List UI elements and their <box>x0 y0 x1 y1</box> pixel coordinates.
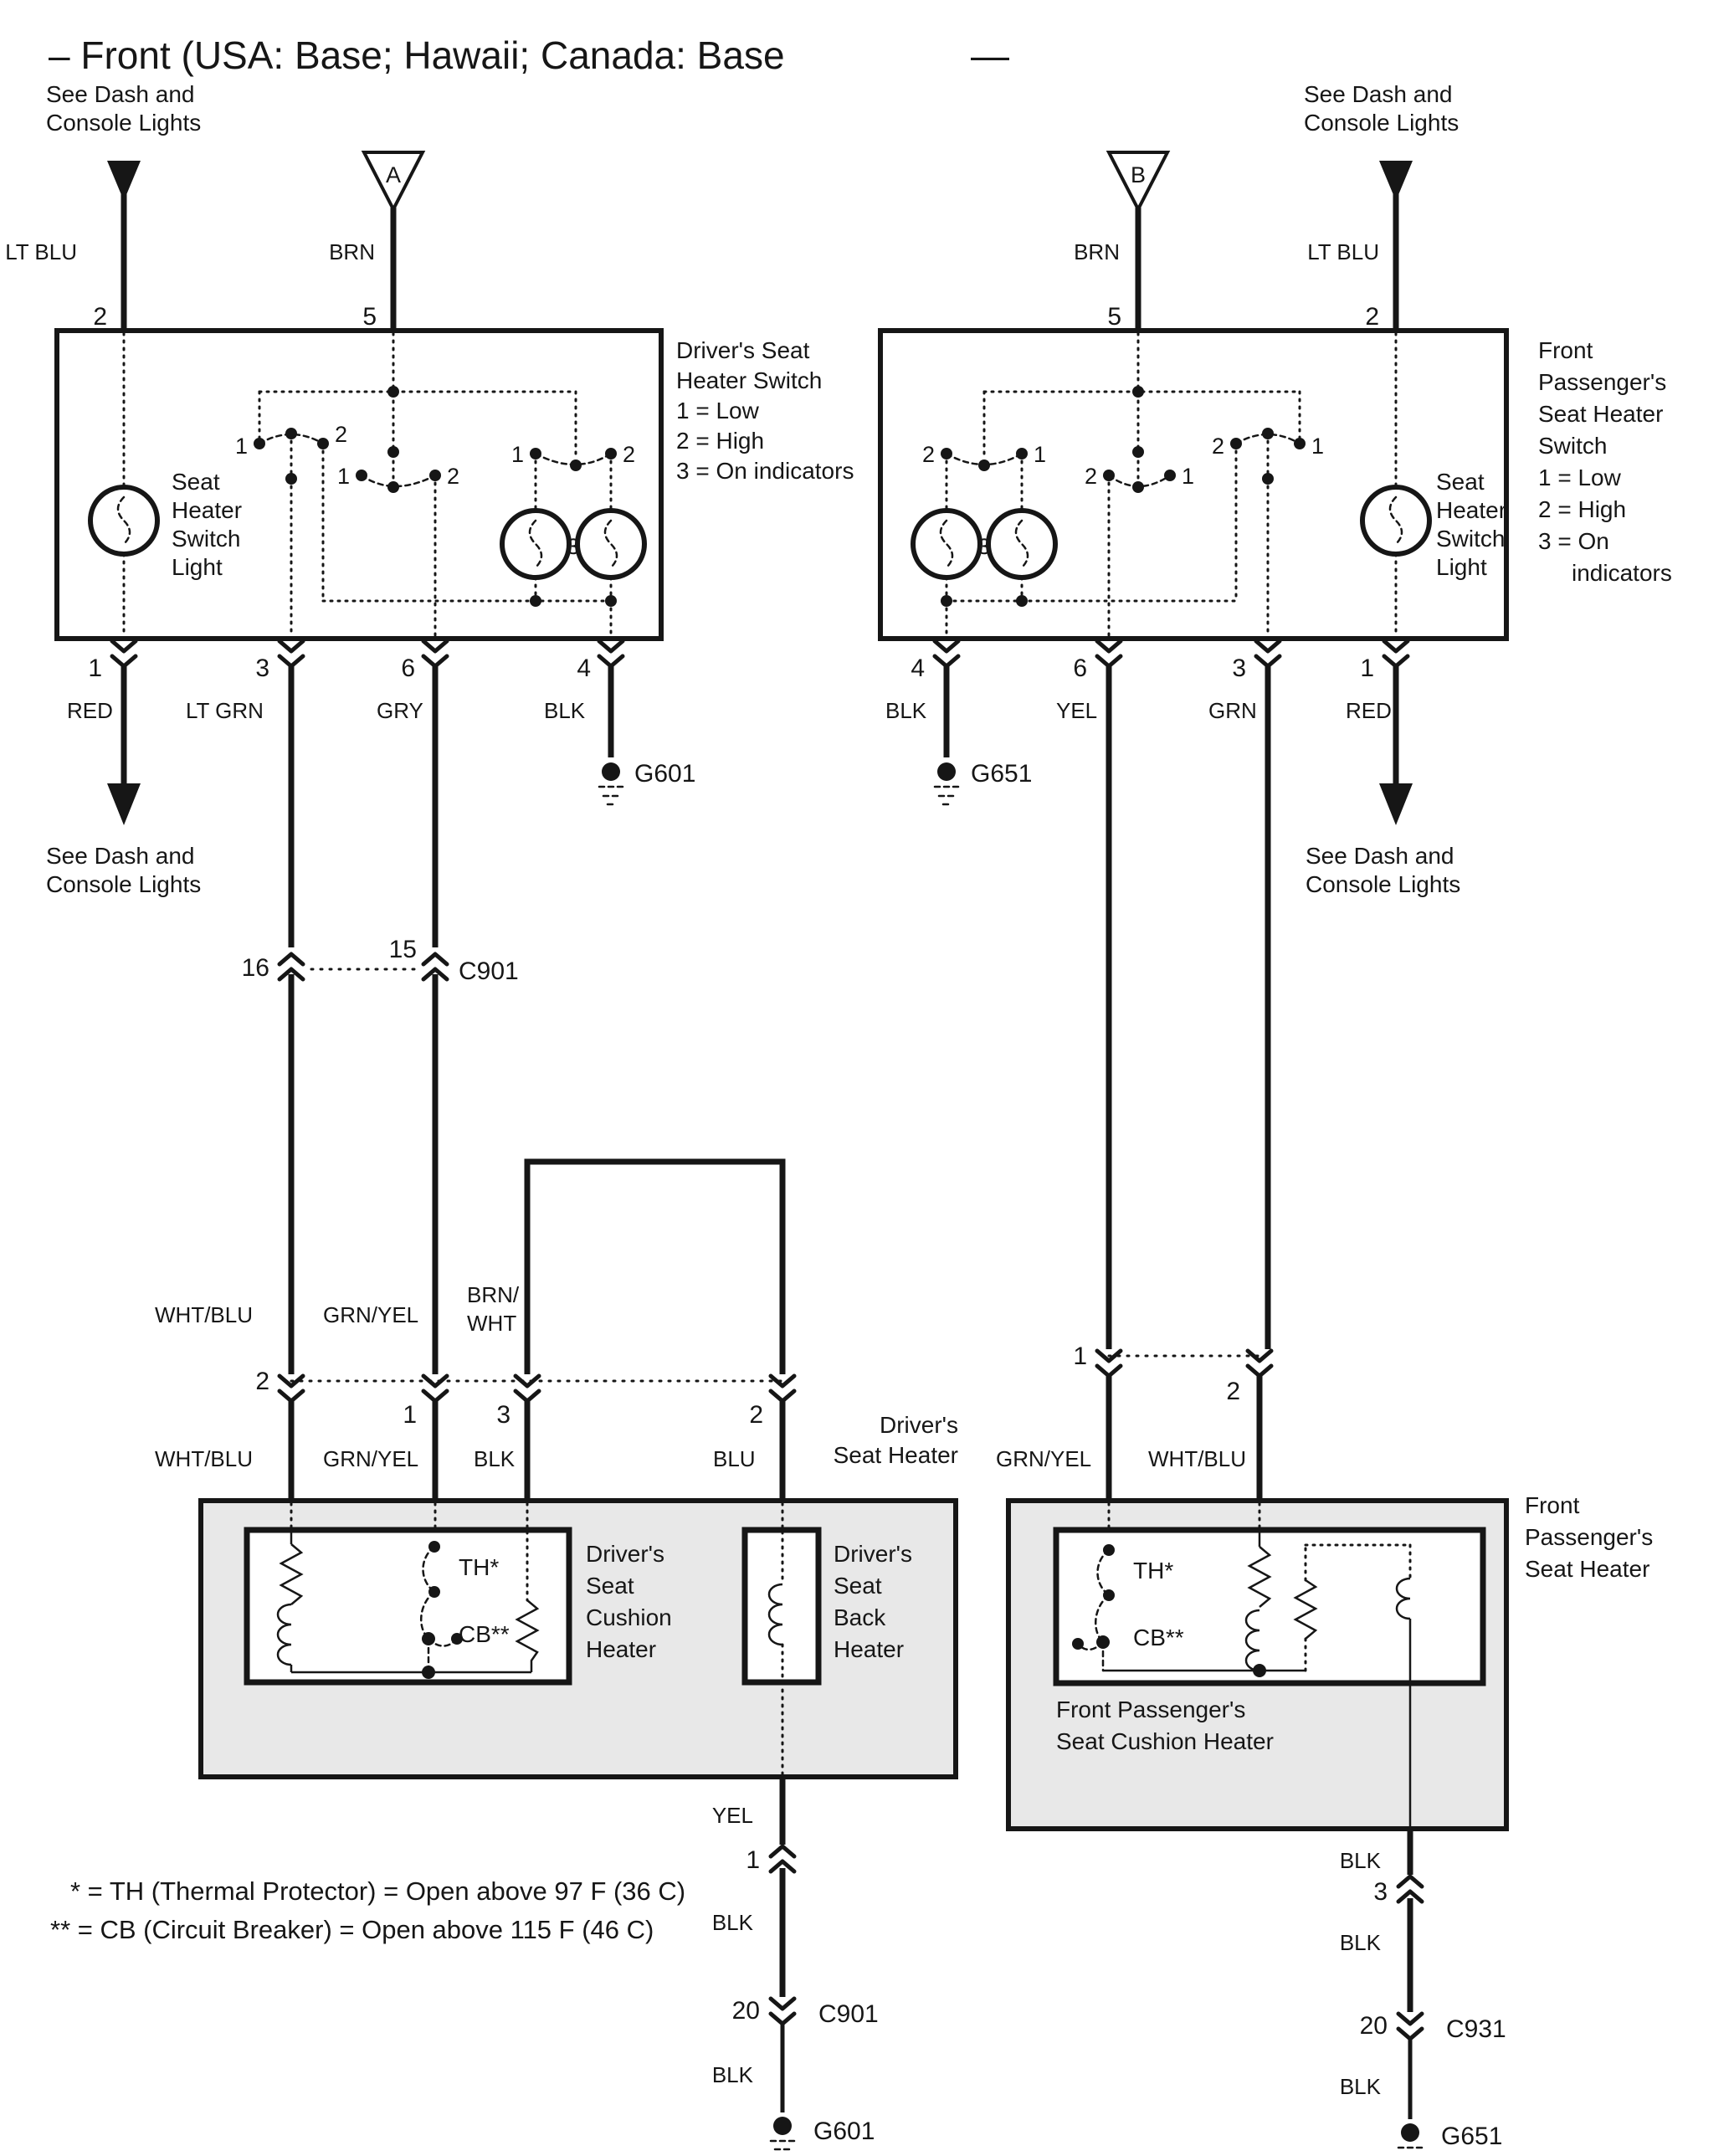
junction-dot <box>1132 446 1144 458</box>
passenger-switch-caption-2: Passenger's <box>1538 369 1666 395</box>
wire-label-brnwht-2: WHT <box>467 1311 516 1336</box>
passenger-switch-caption-4: Switch <box>1538 433 1607 459</box>
passenger-switch-caption-7: 3 = On <box>1538 528 1609 554</box>
pin-2-passenger-conn: 2 <box>1226 1378 1240 1405</box>
driver-indicator2-filament-icon <box>605 521 617 567</box>
driver-ground-chain: YEL 1 BLK 20 C901 BLK G601 <box>712 1777 879 2149</box>
passenger-switch3-pos1: 1 <box>1311 434 1324 459</box>
passenger-switch-caption-6: 2 = High <box>1538 496 1626 522</box>
pin-1-heater-conn: 1 <box>403 1401 417 1429</box>
pin-3-passenger-bottom: 3 <box>1232 654 1246 682</box>
passenger-switch-outputs: 4 6 3 1 BLK YEL GRN RED G651 See Dash an… <box>885 641 1460 897</box>
junction-dot <box>387 446 399 458</box>
driver-back-caption-1: Driver's <box>834 1541 912 1567</box>
passenger-heater-caption-1: Front <box>1525 1492 1580 1518</box>
wire-label-brn-passenger: BRN <box>1074 239 1120 264</box>
wire-brnwht-jumper-loop <box>527 1162 782 1374</box>
pin-15-c901: 15 <box>389 936 417 963</box>
wiring-diagram-page: { "title": { "text": "– Front (USA: Base… <box>0 0 1734 2156</box>
junction-dot <box>285 473 297 485</box>
passenger-switch-internals: 2 1 3 2 1 2 1 <box>913 333 1506 636</box>
wire-label-yel: YEL <box>712 1803 753 1828</box>
wire-label-grn-passenger: GRN <box>1208 698 1257 723</box>
wire-label-brnwht-1: BRN/ <box>467 1282 520 1307</box>
ground-g601-icon <box>773 2117 792 2135</box>
see-dash-bottom-left-2: Console Lights <box>46 871 201 897</box>
passenger-switch1-pos2: 2 <box>922 442 935 467</box>
pin-16-c901: 16 <box>242 954 269 982</box>
connector-chevron-icon <box>1398 1876 1422 1902</box>
driver-th-label: TH* <box>459 1554 499 1580</box>
driver-switch-caption-5: 3 = On indicators <box>676 458 854 484</box>
driver-cushion-heater-box <box>247 1530 569 1682</box>
driver-cushion-caption-1: Driver's <box>586 1541 664 1567</box>
wire-label-blk-p3: BLK <box>1340 2074 1382 2099</box>
wire-label-blu-below: BLU <box>713 1446 756 1471</box>
passenger-light-label-4: Light <box>1436 554 1487 580</box>
connector-c901-upper: 16 15 C901 <box>242 936 519 985</box>
wire-label-blk2: BLK <box>712 2062 754 2087</box>
ground-g651-icon <box>1401 2123 1419 2142</box>
passenger-th-label: TH* <box>1133 1558 1173 1584</box>
pin-3-driver-bottom: 3 <box>255 654 269 682</box>
connector-c901-lower-label: C901 <box>818 2000 879 2028</box>
wire-label-ltblu-passenger: LT BLU <box>1307 239 1379 264</box>
see-dash-top-left-1: See Dash and <box>46 81 194 107</box>
connector-chevron-icon <box>280 641 303 666</box>
passenger-switch1-pos1: 1 <box>1034 442 1046 467</box>
pin-4-driver-bottom: 4 <box>577 654 591 682</box>
passenger-switch3-pos2: 2 <box>1212 434 1224 459</box>
contact-dot <box>451 1633 463 1645</box>
passenger-switch-caption-8: indicators <box>1572 560 1672 586</box>
driver-switch-box <box>57 331 661 639</box>
passenger-heater-caption-2: Passenger's <box>1525 1524 1653 1550</box>
driver-light-label-2: Heater <box>172 497 242 523</box>
connector-chevron-icon <box>935 641 958 666</box>
passenger-cushion-heater-box <box>1056 1530 1483 1683</box>
connector-chevron-icon <box>1256 641 1280 666</box>
connector-chevron-icon <box>423 641 447 666</box>
ground-g601-label: G601 <box>813 2117 875 2145</box>
connector-chevron-icon <box>1097 641 1121 666</box>
pin-3-ground-conn: 3 <box>1373 1878 1388 1906</box>
driver-switch-caption-2: Heater Switch <box>676 367 822 393</box>
passenger-switch2-pos1: 1 <box>1182 464 1194 489</box>
pin-2-passenger-top: 2 <box>1365 303 1379 331</box>
driver-indicator-group-label: 3 <box>567 534 579 559</box>
wire-label-red-passenger: RED <box>1346 698 1392 723</box>
wire-label-blk-driver: BLK <box>544 698 586 723</box>
wire-label-whtblu-passenger: WHT/BLU <box>1148 1446 1246 1471</box>
see-dash-bottom-left-1: See Dash and <box>46 843 194 869</box>
driver-cushion-caption-2: Seat <box>586 1573 634 1599</box>
connector-chevron-icon <box>423 1376 447 1401</box>
wire-label-ltgrn-driver: LT GRN <box>186 698 264 723</box>
pin-5-passenger-top: 5 <box>1107 303 1121 331</box>
wire-label-yel-passenger: YEL <box>1056 698 1097 723</box>
arrow-to-dash-right-icon <box>1379 783 1413 825</box>
wire-label-grnyel-passenger: GRN/YEL <box>996 1446 1091 1471</box>
pin-1-passenger-conn: 1 <box>1073 1342 1087 1370</box>
driver-switch2-pos2: 2 <box>447 464 459 489</box>
wire-label-blk: BLK <box>712 1910 754 1935</box>
connector-chevron-icon <box>1398 2014 1422 2039</box>
driver-light-label-1: Seat <box>172 469 220 495</box>
pin-4-passenger-bottom: 4 <box>911 654 925 682</box>
driver-switch-caption-3: 1 = Low <box>676 398 760 423</box>
driver-cb-label: CB** <box>459 1621 510 1647</box>
ground-g601-switch-label: G601 <box>634 760 695 788</box>
passenger-light-label-1: Seat <box>1436 469 1485 495</box>
connector-chevron-icon <box>1248 1351 1271 1376</box>
connector-chevron-icon <box>516 1376 539 1401</box>
pin-3-heater-conn: 3 <box>496 1401 510 1429</box>
passenger-switch-caption-3: Seat Heater <box>1538 401 1663 427</box>
driver-back-caption-2: Seat <box>834 1573 882 1599</box>
driver-switch-outputs: 1 3 6 4 RED LT GRN GRY BLK See Dash and … <box>46 641 695 897</box>
driver-switch1-pos2: 2 <box>335 422 347 447</box>
passenger-light-label-2: Heater <box>1436 497 1506 523</box>
passenger-heater-connector: 1 2 <box>1073 1342 1271 1405</box>
wire-label-ltblu-driver: LT BLU <box>5 239 77 264</box>
pin-2-heater-conn: 2 <box>255 1368 269 1395</box>
ground-g651-switch-label: G651 <box>971 760 1032 788</box>
footnote-cb: ** = CB (Circuit Breaker) = Open above 1… <box>50 1915 654 1944</box>
pin-6-passenger-bottom: 6 <box>1073 654 1087 682</box>
connector-b-label: B <box>1131 162 1146 187</box>
connector-c931-label: C931 <box>1446 2015 1506 2043</box>
wire-label-brn-driver: BRN <box>329 239 375 264</box>
junction-dot <box>422 1666 435 1679</box>
passenger-light-label-3: Switch <box>1436 526 1505 552</box>
driver-cushion-caption-4: Heater <box>586 1636 656 1662</box>
arrow-to-dash-left-icon <box>107 783 141 825</box>
wire-label-blk-p2: BLK <box>1340 1930 1382 1955</box>
junction-dot <box>1262 473 1274 485</box>
see-dash-bottom-right-1: See Dash and <box>1306 843 1454 869</box>
contact-dot <box>1072 1638 1084 1650</box>
driver-light-label-4: Light <box>172 554 223 580</box>
passenger-switch2-pos2: 2 <box>1085 464 1097 489</box>
see-dash-bottom-right-2: Console Lights <box>1306 871 1460 897</box>
pin-20-c901: 20 <box>732 1997 760 2025</box>
pin-1-passenger-bottom: 1 <box>1360 654 1374 682</box>
driver-switch2-pos1: 1 <box>337 464 350 489</box>
wire-label-blk-below: BLK <box>474 1446 516 1471</box>
page-title-dash: — <box>971 33 1009 77</box>
driver-switch3-pos2: 2 <box>623 442 635 467</box>
ground-hatch-icon <box>599 787 623 804</box>
driver-back-caption-4: Heater <box>834 1636 904 1662</box>
ground-g651-label: G651 <box>1441 2123 1502 2150</box>
pin-2-driver-top: 2 <box>93 303 107 331</box>
junction-dot <box>1016 595 1028 607</box>
passenger-cb-label: CB** <box>1133 1625 1184 1650</box>
pin-6-driver-bottom: 6 <box>401 654 415 682</box>
pin-20-c931: 20 <box>1360 2012 1388 2040</box>
passenger-ground-chain: BLK 3 BLK 20 C931 BLK G651 <box>1340 1829 1506 2150</box>
ground-g601-switch-icon <box>602 762 620 781</box>
connector-chevron-icon <box>771 1376 794 1401</box>
passenger-indicator-group-label: 3 <box>977 534 990 559</box>
pin-1-ground-conn: 1 <box>746 1846 760 1874</box>
driver-switch1-pos1: 1 <box>235 434 248 459</box>
wire-label-red-driver: RED <box>67 698 113 723</box>
passenger-switch-caption-1: Front <box>1538 337 1593 363</box>
wire-label-grnyel-below: GRN/YEL <box>323 1446 418 1471</box>
wire-label-grnyel-above: GRN/YEL <box>323 1302 418 1327</box>
driver-heater-caption-2: Seat Heater <box>834 1442 958 1468</box>
page-title: – Front (USA: Base; Hawaii; Canada: Base <box>49 33 785 77</box>
driver-heater-caption-1: Driver's <box>880 1412 958 1438</box>
connector-chevron-icon <box>771 1999 794 2024</box>
driver-switch3-pos1: 1 <box>511 442 524 467</box>
ground-hatch-icon <box>935 787 958 804</box>
driver-light-label-3: Switch <box>172 526 240 552</box>
junction-dot <box>1253 1664 1266 1677</box>
see-dash-top-left-2: Console Lights <box>46 110 201 136</box>
connector-chevron-icon <box>112 641 136 666</box>
passenger-indicator1-filament-icon <box>941 521 952 567</box>
junction-dot <box>530 595 541 607</box>
driver-indicator1-filament-icon <box>530 521 541 567</box>
driver-switch-caption-4: 2 = High <box>676 428 764 454</box>
connector-chevron-icon <box>771 1846 794 1871</box>
passenger-cushion-caption-2: Seat Cushion Heater <box>1056 1728 1274 1754</box>
see-dash-top-right-1: See Dash and <box>1304 81 1452 107</box>
pin-1-driver-bottom: 1 <box>88 654 102 682</box>
driver-back-caption-3: Back <box>834 1604 886 1630</box>
connector-c901-label: C901 <box>459 957 519 985</box>
ground-hatch-icon <box>771 2141 794 2149</box>
driver-cushion-caption-3: Cushion <box>586 1604 672 1630</box>
passenger-indicator2-filament-icon <box>1016 521 1028 567</box>
driver-switch-internals: Seat Heater Switch Light 1 2 1 2 1 <box>90 333 644 636</box>
pin-2b-heater-conn: 2 <box>749 1401 763 1429</box>
footnote-th: * = TH (Thermal Protector) = Open above … <box>70 1876 685 1906</box>
passenger-switch-light-filament-icon <box>1390 497 1402 544</box>
passenger-cushion-caption-1: Front Passenger's <box>1056 1697 1245 1722</box>
connector-chevron-icon <box>599 641 623 666</box>
see-dash-top-right-2: Console Lights <box>1304 110 1459 136</box>
wire-label-whtblu-below: WHT/BLU <box>155 1446 253 1471</box>
diagram-canvas: – Front (USA: Base; Hawaii; Canada: Base… <box>0 0 1734 2156</box>
pin-5-driver-top: 5 <box>362 303 377 331</box>
driver-switch-light-filament-icon <box>118 497 130 544</box>
ground-g651-switch-icon <box>937 762 956 781</box>
wire-label-gry-driver: GRY <box>377 698 423 723</box>
wire-label-blk-passenger: BLK <box>885 698 927 723</box>
driver-switch-caption-1: Driver's Seat <box>676 337 810 363</box>
passenger-switch-caption-5: 1 = Low <box>1538 465 1622 490</box>
wire-label-whtblu-above: WHT/BLU <box>155 1302 253 1327</box>
connector-chevron-icon <box>1384 641 1408 666</box>
passenger-heater-caption-3: Seat Heater <box>1525 1556 1649 1582</box>
connector-a-label: A <box>386 162 401 187</box>
wire-label-blk-p1: BLK <box>1340 1848 1382 1873</box>
